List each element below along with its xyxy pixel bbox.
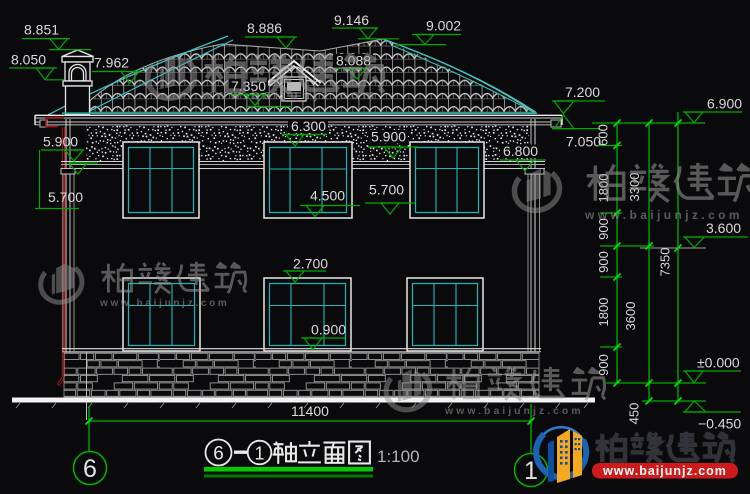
svg-text:3600: 3600 bbox=[623, 302, 638, 331]
svg-text:6: 6 bbox=[213, 444, 224, 465]
svg-text:www.baijunjz.com: www.baijunjz.com bbox=[602, 464, 727, 478]
svg-text:8.050: 8.050 bbox=[11, 52, 46, 68]
svg-text:6.800: 6.800 bbox=[503, 143, 538, 159]
svg-text:www.baijunjz.com: www.baijunjz.com bbox=[584, 208, 743, 222]
svg-text:5.900: 5.900 bbox=[43, 134, 78, 150]
svg-text:6.300: 6.300 bbox=[291, 118, 326, 134]
svg-text:8.886: 8.886 bbox=[247, 20, 282, 36]
svg-text:11400: 11400 bbox=[291, 403, 329, 419]
svg-text:www.baijunjz.com: www.baijunjz.com bbox=[99, 298, 230, 309]
svg-text:6: 6 bbox=[83, 455, 97, 483]
svg-text:4.500: 4.500 bbox=[310, 188, 345, 204]
svg-text:900: 900 bbox=[596, 251, 611, 273]
svg-text:−0.450: −0.450 bbox=[698, 416, 741, 432]
svg-text:www.baijunjz.com: www.baijunjz.com bbox=[201, 87, 378, 102]
svg-text:6.900: 6.900 bbox=[707, 96, 742, 112]
svg-text:±0.000: ±0.000 bbox=[697, 355, 740, 371]
svg-text:5.700: 5.700 bbox=[369, 182, 404, 198]
svg-text:7.962: 7.962 bbox=[94, 55, 129, 71]
svg-text:1800: 1800 bbox=[596, 298, 611, 327]
svg-text:600: 600 bbox=[596, 124, 611, 146]
svg-text:5.900: 5.900 bbox=[371, 129, 406, 145]
svg-text:8.851: 8.851 bbox=[24, 22, 59, 38]
svg-text:3.600: 3.600 bbox=[706, 220, 741, 236]
svg-text:9.146: 9.146 bbox=[334, 12, 369, 28]
svg-text:0.900: 0.900 bbox=[311, 322, 346, 338]
svg-text:7350: 7350 bbox=[658, 248, 673, 277]
svg-text:9.002: 9.002 bbox=[426, 18, 461, 34]
svg-text:450: 450 bbox=[627, 403, 642, 425]
svg-text:5.700: 5.700 bbox=[48, 189, 83, 205]
svg-text:1: 1 bbox=[254, 444, 264, 464]
svg-text:1:100: 1:100 bbox=[377, 447, 420, 466]
svg-text:2.700: 2.700 bbox=[293, 256, 328, 272]
svg-text:www.baijunjz.com: www.baijunjz.com bbox=[444, 405, 584, 417]
svg-text:7.200: 7.200 bbox=[565, 84, 600, 100]
